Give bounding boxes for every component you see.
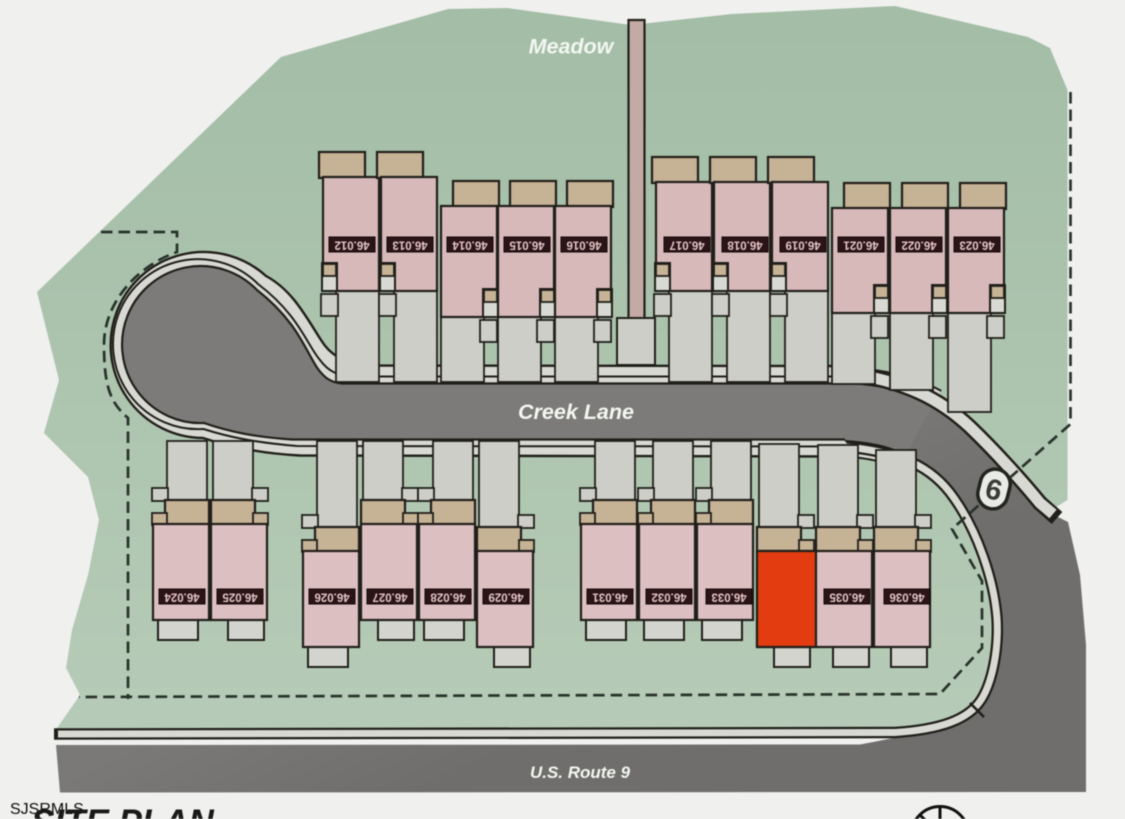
svg-text:46.026: 46.026 xyxy=(314,591,349,603)
svg-text:46.032: 46.032 xyxy=(651,591,686,603)
svg-text:46.022: 46.022 xyxy=(901,239,936,251)
svg-text:46.025: 46.025 xyxy=(222,591,258,603)
svg-text:46.014: 46.014 xyxy=(452,239,488,251)
svg-text:U.S. Route 9: U.S. Route 9 xyxy=(530,763,631,782)
svg-text:Creek Lane: Creek Lane xyxy=(518,400,634,424)
svg-text:46.024: 46.024 xyxy=(164,591,200,603)
svg-text:46.017: 46.017 xyxy=(669,239,704,251)
svg-text:46.016: 46.016 xyxy=(566,239,601,251)
svg-text:46.015: 46.015 xyxy=(509,239,545,251)
svg-text:46.036: 46.036 xyxy=(889,591,924,603)
svg-text:SITE PLAN: SITE PLAN xyxy=(31,803,215,819)
svg-text:Meadow: Meadow xyxy=(529,35,615,59)
svg-text:46.028: 46.028 xyxy=(430,591,466,603)
svg-text:46.013: 46.013 xyxy=(392,239,427,251)
svg-text:46.035: 46.035 xyxy=(829,591,865,603)
svg-text:46.031: 46.031 xyxy=(592,591,628,603)
svg-text:46.021: 46.021 xyxy=(843,239,879,251)
svg-text:46.027: 46.027 xyxy=(372,591,407,603)
svg-text:46.018: 46.018 xyxy=(727,239,763,251)
svg-text:46.019: 46.019 xyxy=(785,239,820,251)
svg-text:46.023: 46.023 xyxy=(959,239,994,251)
svg-text:46.012: 46.012 xyxy=(334,239,369,251)
svg-text:46.033: 46.033 xyxy=(711,591,746,603)
svg-text:46.029: 46.029 xyxy=(488,591,523,603)
